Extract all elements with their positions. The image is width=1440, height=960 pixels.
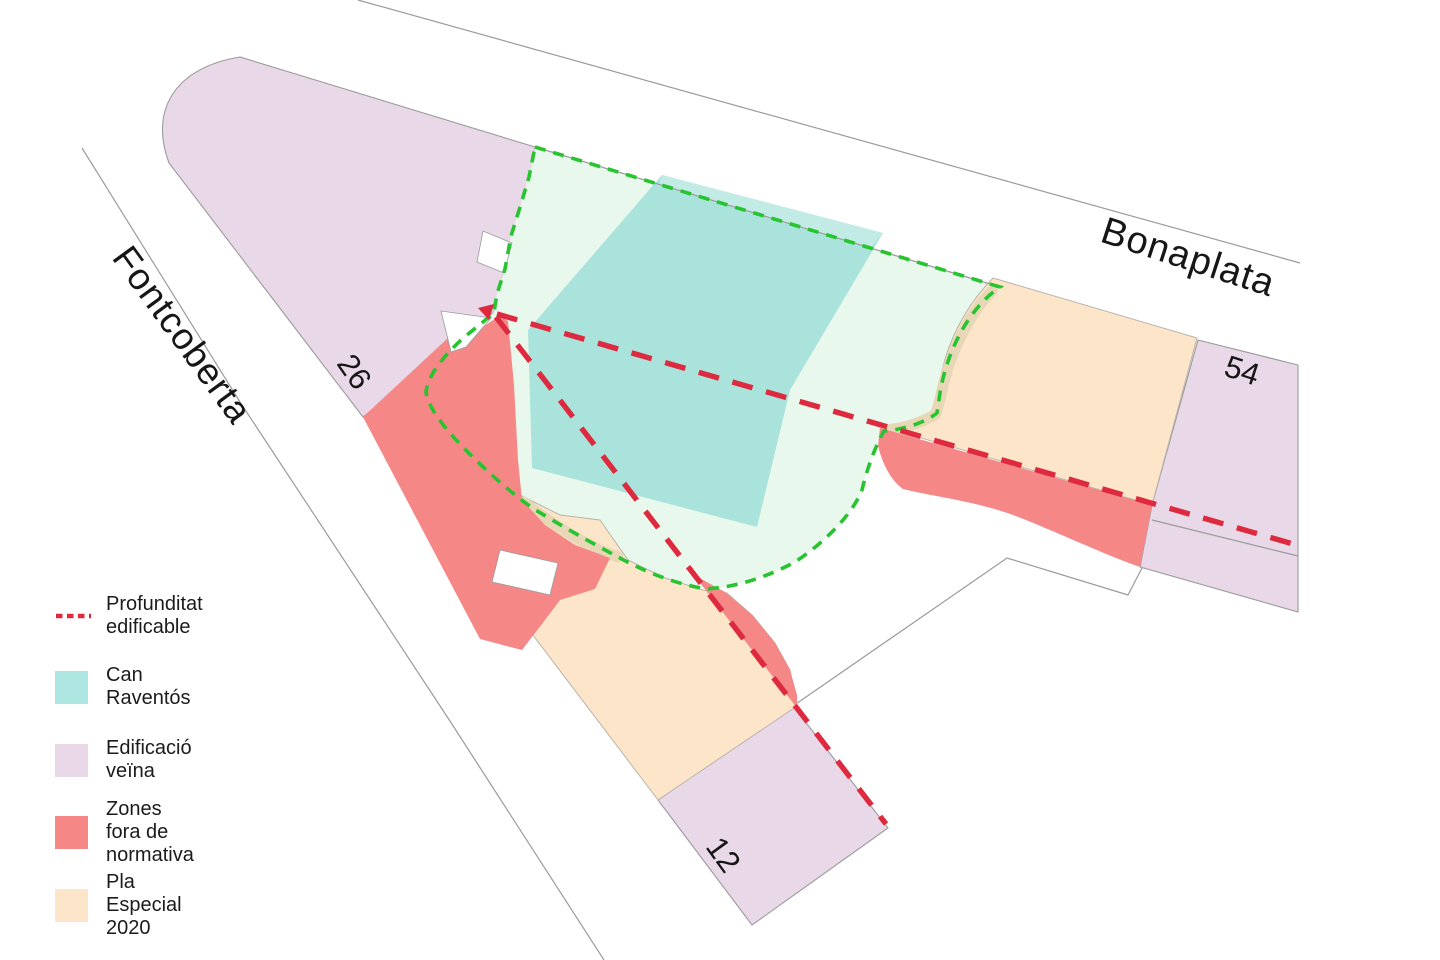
- legend-label: Pla Especial 2020: [106, 871, 182, 940]
- map-canvas: [0, 0, 1440, 960]
- legend-item-edificacio-veina: Edificació veïna: [55, 743, 192, 777]
- legend-label: Edificació veïna: [106, 737, 192, 783]
- legend-color-swatch: [55, 671, 88, 704]
- legend-item-zones-fora: Zones fora de normativa: [55, 815, 194, 849]
- legend-label: Can Raventós: [106, 664, 191, 710]
- legend-item-pla-especial: Pla Especial 2020: [55, 888, 182, 922]
- legend-color-swatch: [55, 889, 88, 922]
- legend-dashed-line-swatch: [55, 599, 91, 633]
- legend-label: Zones fora de normativa: [106, 798, 194, 867]
- street-line-southeast: [793, 558, 1142, 706]
- legend-item-profunditat: Profunditat edificable: [55, 599, 203, 633]
- site-plan-figure: Fontcoberta Bonaplata 26 54 12 Profundit…: [0, 0, 1440, 960]
- legend-color-swatch: [55, 816, 88, 849]
- legend-label: Profunditat edificable: [106, 593, 203, 639]
- legend-color-swatch: [55, 744, 88, 777]
- legend-item-can-raventos: Can Raventós: [55, 670, 191, 704]
